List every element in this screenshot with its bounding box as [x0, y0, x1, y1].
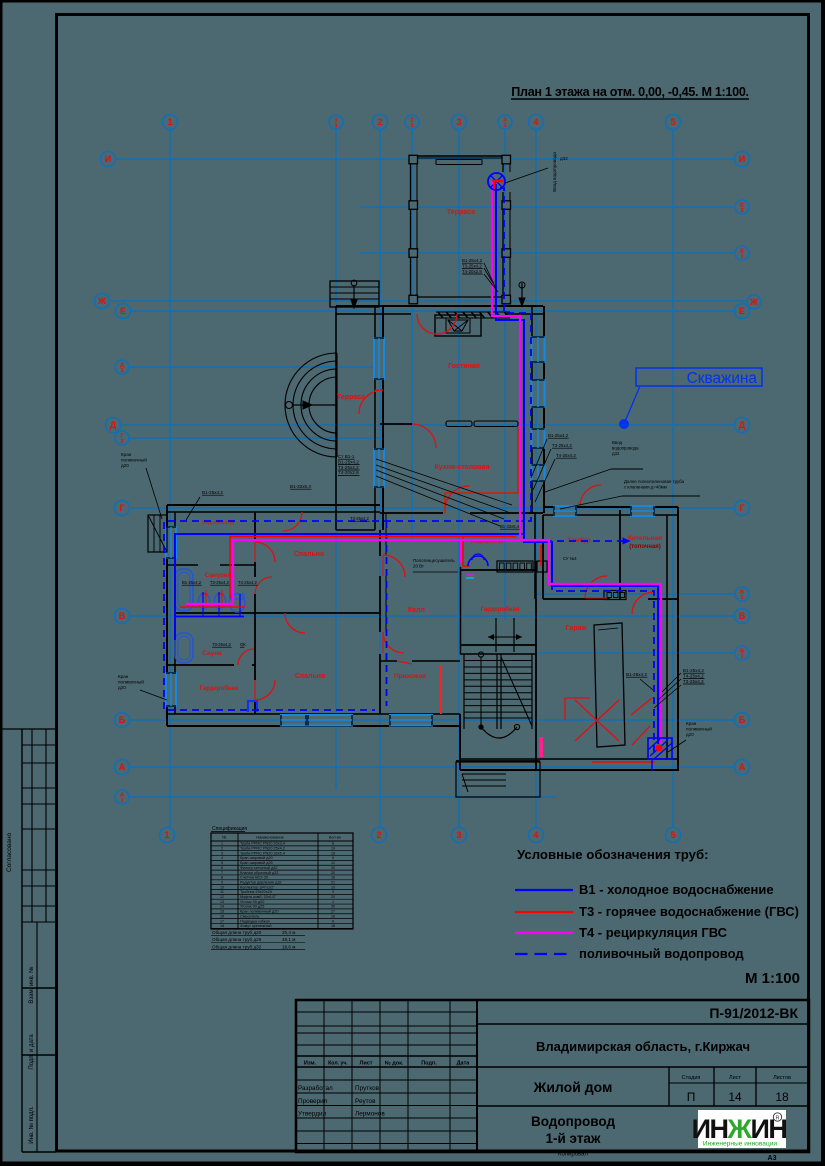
svg-text:ИНЖИН: ИНЖИН	[692, 1114, 787, 1144]
svg-text:№: №	[222, 835, 226, 840]
svg-text:1: 1	[334, 123, 337, 129]
svg-text:Ж: Ж	[97, 296, 107, 306]
svg-text:30: 30	[331, 866, 335, 870]
svg-text:Т4-20х2,8: Т4-20х2,8	[462, 269, 482, 274]
svg-text:Гараж: Гараж	[566, 625, 588, 632]
svg-text:2: 2	[740, 208, 743, 214]
svg-text:27: 27	[331, 910, 335, 914]
svg-text:д20: д20	[121, 463, 129, 468]
svg-text:П: П	[687, 1090, 696, 1104]
svg-text:Общая длина труб д25: Общая длина труб д25	[212, 937, 262, 942]
svg-text:Кол-во: Кол-во	[329, 835, 342, 840]
svg-text:СУ №4: СУ №4	[563, 556, 577, 561]
svg-text:12: 12	[220, 895, 224, 899]
svg-text:Терраса: Терраса	[337, 394, 365, 401]
svg-text:10: 10	[220, 885, 224, 889]
svg-text:Подп.: Подп.	[421, 1061, 437, 1067]
svg-text:18: 18	[331, 851, 335, 855]
svg-text:1: 1	[740, 595, 743, 601]
svg-text:4: 4	[533, 117, 538, 127]
svg-text:18,6 м: 18,6 м	[282, 944, 295, 949]
svg-text:Фильтр сетчатый д32: Фильтр сетчатый д32	[240, 866, 278, 870]
svg-text:Труба PPRC PN20 20х3,4: Труба PPRC PN20 20х3,4	[240, 842, 285, 846]
svg-text:Кран: Кран	[118, 674, 129, 679]
svg-text:Общая длина труб д20: Общая длина труб д20	[212, 930, 262, 935]
svg-text:Т3-25х4,2: Т3-25х4,2	[338, 465, 359, 470]
svg-text:48,1 м: 48,1 м	[282, 937, 295, 942]
svg-text:18: 18	[775, 1090, 789, 1104]
svg-text:д32: д32	[612, 451, 620, 456]
svg-text:с клапанами д=40мм: с клапанами д=40мм	[624, 484, 667, 489]
svg-text:5: 5	[332, 856, 334, 860]
svg-text:Муфта комб. 20х1/2": Муфта комб. 20х1/2"	[240, 895, 277, 899]
svg-text:19: 19	[331, 847, 335, 851]
svg-text:21: 21	[331, 880, 335, 884]
svg-text:7: 7	[221, 871, 223, 875]
svg-text:А: А	[119, 762, 126, 772]
svg-text:17: 17	[220, 919, 224, 923]
svg-text:Спецификация: Спецификация	[212, 826, 247, 832]
svg-text:ОК: ОК	[240, 642, 246, 647]
svg-text:Копировал: Копировал	[558, 1152, 589, 1158]
svg-text:В1-25х4,2: В1-25х4,2	[548, 433, 569, 438]
svg-text:Листов: Листов	[773, 1075, 791, 1081]
svg-text:Инв. № подл.: Инв. № подл.	[28, 1106, 35, 1144]
svg-text:Б: Б	[119, 715, 126, 725]
svg-text:Труба PPRC PN20 25х4,2: Труба PPRC PN20 25х4,2	[240, 847, 285, 851]
svg-text:Д: Д	[739, 420, 746, 430]
svg-text:Хомут крепежный: Хомут крепежный	[240, 924, 271, 928]
svg-text:15: 15	[220, 910, 224, 914]
svg-text:Согласовано: Согласовано	[6, 833, 13, 872]
svg-text:Холл: Холл	[407, 607, 425, 614]
svg-text:В1-32х5,4: В1-32х5,4	[290, 484, 311, 489]
svg-text:водопровода: водопровода	[612, 445, 639, 450]
svg-text:19: 19	[331, 885, 335, 889]
svg-text:Ст В1-1: Ст В1-1	[338, 454, 355, 459]
svg-text:Скважина: Скважина	[687, 370, 758, 387]
svg-text:Гостиная: Гостиная	[448, 363, 480, 370]
svg-text:Реутов: Реутов	[355, 1098, 376, 1105]
svg-text:Подводка гибкая: Подводка гибкая	[240, 919, 270, 923]
svg-text:2: 2	[377, 117, 382, 127]
svg-text:№ док.: № док.	[385, 1061, 404, 1067]
svg-text:3: 3	[332, 890, 334, 894]
svg-text:1-й этаж: 1-й этаж	[545, 1131, 600, 1146]
svg-text:Жилой дом: Жилой дом	[533, 1079, 613, 1095]
svg-text:поливочный: поливочный	[686, 725, 712, 731]
svg-text:1: 1	[410, 123, 413, 129]
svg-text:Лермонов: Лермонов	[355, 1111, 385, 1118]
svg-text:И: И	[739, 154, 745, 164]
svg-text:Владимирская область, г.Киржач: Владимирская область, г.Киржач	[536, 1039, 750, 1054]
svg-text:Кран: Кран	[686, 721, 697, 726]
svg-text:Е: Е	[739, 306, 745, 316]
svg-text:Терраса: Терраса	[447, 209, 475, 216]
svg-text:поливочный: поливочный	[118, 678, 144, 684]
svg-text:3: 3	[456, 830, 461, 840]
svg-text:Т4 - рециркуляция ГВС: Т4 - рециркуляция ГВС	[579, 925, 728, 940]
svg-text:В1-25х4,2: В1-25х4,2	[338, 459, 359, 464]
svg-text:Котельная: Котельная	[628, 535, 662, 542]
svg-text:Стадия: Стадия	[682, 1075, 701, 1081]
svg-text:Условные обозначения труб:: Условные обозначения труб:	[517, 847, 709, 862]
svg-text:1: 1	[120, 368, 123, 374]
svg-text:Уголок 90 д20: Уголок 90 д20	[240, 900, 264, 904]
svg-text:План 1 этажа на отм. 0,00, -0,: План 1 этажа на отм. 0,00, -0,45. М 1:10…	[511, 85, 749, 99]
svg-text:3: 3	[456, 117, 461, 127]
svg-text:Прутков: Прутков	[355, 1085, 380, 1092]
svg-text:поливочный: поливочный	[121, 456, 147, 462]
svg-text:П-91/2012-ВК: П-91/2012-ВК	[709, 1005, 798, 1021]
svg-text:Ж: Ж	[749, 297, 759, 307]
svg-text:Гардеробная: Гардеробная	[481, 606, 520, 613]
svg-text:Т3-25х4,2: Т3-25х4,2	[210, 580, 230, 585]
svg-text:Спальня: Спальня	[294, 551, 324, 558]
svg-text:Т4-25х4,2: Т4-25х4,2	[556, 453, 576, 458]
svg-text:Далее полиэтиленовая труба: Далее полиэтиленовая труба	[624, 479, 685, 484]
svg-text:И: И	[105, 154, 111, 164]
svg-text:Проверил: Проверил	[298, 1098, 328, 1105]
svg-text:Т4-25х4,2: Т4-25х4,2	[683, 673, 704, 678]
svg-text:Санузел: Санузел	[205, 572, 232, 579]
svg-text:30: 30	[331, 905, 335, 909]
svg-text:5: 5	[221, 861, 223, 865]
svg-text:Взам. инв. №: Взам. инв. №	[28, 966, 35, 1003]
svg-text:Т3-25х4,2: Т3-25х4,2	[350, 516, 370, 521]
svg-text:Д: Д	[110, 420, 117, 430]
svg-text:1: 1	[740, 254, 743, 260]
svg-text:1: 1	[221, 842, 223, 846]
svg-text:16: 16	[331, 914, 335, 918]
svg-text:В1-25х4,2: В1-25х4,2	[683, 668, 704, 673]
svg-text:В1 - холодное водоснабжение: В1 - холодное водоснабжение	[579, 882, 774, 897]
svg-text:13: 13	[220, 900, 224, 904]
svg-text:1: 1	[332, 900, 334, 904]
svg-text:Т3 - горячее водоснабжение (ГВ: Т3 - горячее водоснабжение (ГВС)	[579, 904, 799, 919]
svg-text:Т4-20х2,8: Т4-20х2,8	[338, 470, 359, 475]
svg-text:Общая длина труб д32: Общая длина труб д32	[212, 944, 262, 949]
svg-text:д20: д20	[686, 732, 694, 737]
svg-text:Кран: Кран	[121, 452, 132, 457]
svg-text:Ввод: Ввод	[612, 440, 623, 445]
svg-text:25,4 м: 25,4 м	[282, 930, 295, 935]
svg-text:Гардеробная: Гардеробная	[200, 685, 239, 692]
svg-text:Ввод водопровода: Ввод водопровода	[552, 152, 557, 192]
svg-text:18: 18	[220, 924, 224, 928]
svg-text:Наименование: Наименование	[256, 835, 285, 840]
svg-text:(топочная): (топочная)	[629, 544, 661, 550]
svg-text:Е: Е	[120, 306, 126, 316]
svg-text:Т3-25х4,2: Т3-25х4,2	[683, 679, 704, 684]
svg-text:Кол. уч.: Кол. уч.	[328, 1061, 348, 1067]
svg-text:д20: д20	[118, 685, 126, 690]
svg-text:Коллектор 3/4"х1/2": Коллектор 3/4"х1/2"	[240, 885, 275, 889]
svg-text:Смеситель: Смеситель	[240, 914, 259, 918]
svg-text:В1-25х4,2: В1-25х4,2	[202, 490, 223, 495]
svg-text:11: 11	[220, 890, 224, 894]
svg-text:Тамбур: Тамбур	[567, 536, 591, 544]
svg-text:В: В	[739, 611, 746, 621]
svg-text:1: 1	[740, 654, 743, 660]
svg-text:Счетчик ВСХ-20: Счетчик ВСХ-20	[240, 876, 268, 880]
svg-text:Дата: Дата	[457, 1061, 471, 1067]
svg-text:6: 6	[221, 866, 223, 870]
svg-text:В1-25х4,2: В1-25х4,2	[626, 672, 647, 677]
svg-text:20 Вт: 20 Вт	[413, 563, 424, 568]
svg-text:поливочный водопровод: поливочный водопровод	[579, 946, 744, 961]
svg-text:Б: Б	[739, 715, 746, 725]
svg-text:R: R	[776, 1116, 780, 1122]
svg-text:Водопровод: Водопровод	[531, 1114, 615, 1129]
svg-text:1: 1	[120, 798, 123, 804]
svg-text:14: 14	[220, 905, 224, 909]
svg-text:Труба PPRC PN20 32х5,4: Труба PPRC PN20 32х5,4	[240, 851, 285, 855]
svg-text:Утвердил: Утвердил	[298, 1111, 327, 1118]
svg-text:Т4-25х4,2: Т4-25х4,2	[238, 580, 258, 585]
svg-text:Лист: Лист	[729, 1075, 741, 1081]
svg-text:Г: Г	[739, 503, 744, 513]
svg-text:Подп. и дата: Подп. и дата	[29, 1034, 35, 1070]
svg-text:4: 4	[533, 830, 538, 840]
svg-text:14: 14	[728, 1090, 742, 1104]
svg-text:Кран поливочный д20: Кран поливочный д20	[240, 910, 278, 914]
svg-text:Спальня: Спальня	[295, 673, 325, 680]
svg-text:Кухня-столовая: Кухня-столовая	[435, 464, 490, 471]
svg-text:М 1:100: М 1:100	[745, 970, 800, 987]
svg-text:16: 16	[331, 876, 335, 880]
svg-text:Инженерные инновации: Инженерные инновации	[703, 1141, 778, 1148]
svg-text:5: 5	[670, 117, 675, 127]
svg-text:2: 2	[120, 439, 123, 445]
svg-text:В1-25х4,2: В1-25х4,2	[182, 580, 202, 585]
svg-text:2: 2	[376, 830, 381, 840]
svg-text:Прихожая: Прихожая	[394, 673, 426, 680]
svg-text:Г: Г	[119, 503, 124, 513]
svg-text:Сауна: Сауна	[202, 650, 222, 657]
svg-text:Клапан обратный д32: Клапан обратный д32	[240, 871, 278, 875]
svg-text:2: 2	[221, 847, 223, 851]
svg-text:В: В	[119, 611, 126, 621]
svg-text:9: 9	[221, 880, 223, 884]
svg-text:1: 1	[164, 830, 169, 840]
svg-text:1: 1	[167, 117, 172, 127]
svg-text:8: 8	[221, 876, 223, 880]
svg-text:1: 1	[503, 123, 506, 129]
svg-text:18: 18	[331, 924, 335, 928]
svg-text:Редуктор давления д32: Редуктор давления д32	[240, 880, 282, 884]
svg-text:Полотенцесушитель: Полотенцесушитель	[413, 558, 455, 563]
svg-text:Кран шаровой д25: Кран шаровой д25	[240, 861, 273, 865]
svg-text:В1-25х4,2: В1-25х4,2	[462, 258, 483, 263]
svg-text:20: 20	[331, 871, 335, 875]
svg-text:5: 5	[670, 830, 675, 840]
svg-text:А: А	[739, 762, 746, 772]
svg-text:9: 9	[332, 919, 334, 923]
svg-text:3: 3	[221, 851, 223, 855]
svg-text:В1-32х5,4: В1-32х5,4	[500, 524, 520, 529]
svg-text:Уголок 90 д25: Уголок 90 д25	[240, 905, 264, 909]
svg-text:А3: А3	[768, 1155, 777, 1162]
svg-text:Изм.: Изм.	[304, 1061, 317, 1067]
svg-text:16: 16	[220, 914, 224, 918]
svg-text:Т3-25х4,2: Т3-25х4,2	[552, 443, 572, 448]
svg-text:Т3-25х4,2: Т3-25х4,2	[212, 642, 232, 647]
svg-text:Тройник 25х20х25: Тройник 25х20х25	[240, 890, 272, 894]
svg-text:д32: д32	[560, 156, 568, 161]
svg-text:8: 8	[332, 842, 334, 846]
svg-text:20: 20	[331, 895, 335, 899]
svg-text:Т3-25х4,2: Т3-25х4,2	[462, 263, 482, 268]
svg-text:Разработал: Разработал	[298, 1084, 333, 1092]
svg-text:4: 4	[221, 856, 223, 860]
svg-text:Кран шаровой д20: Кран шаровой д20	[240, 856, 273, 860]
svg-text:12: 12	[331, 861, 335, 865]
svg-text:Лист: Лист	[360, 1061, 373, 1067]
